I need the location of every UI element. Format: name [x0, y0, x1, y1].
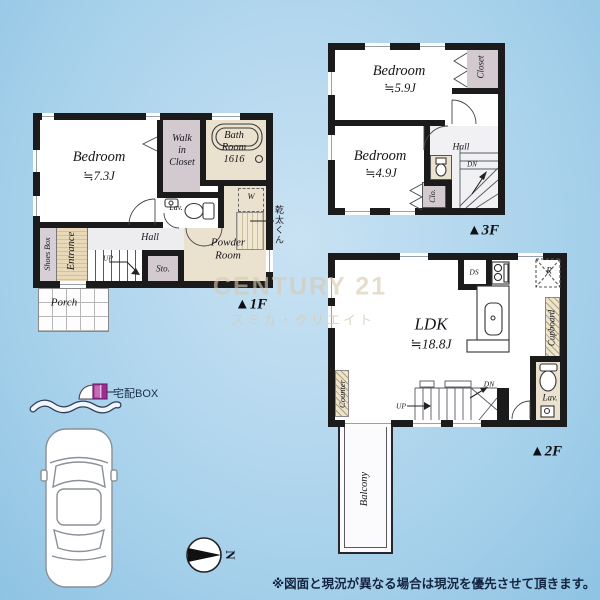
- label-wic-1: Walk: [172, 134, 192, 144]
- label-clo-3f: Clo.: [429, 189, 437, 203]
- door-opening: [266, 250, 273, 272]
- label-bedroom-1f-size: ≒7.3J: [83, 170, 115, 183]
- label-storage: Sto.: [156, 265, 170, 274]
- window: [33, 196, 40, 216]
- label-closet-3f: Closet: [477, 55, 486, 78]
- window: [146, 113, 160, 120]
- label-up-1f: UP: [103, 254, 113, 262]
- delivery-box-label: 宅配BOX: [113, 385, 158, 401]
- watermark-brand: CENTURY 21: [213, 273, 387, 302]
- label-bedroom2-3f: Bedroom: [354, 149, 407, 164]
- balcony-door: [345, 420, 391, 427]
- floorplan-canvas: Bedroom ≒7.3J Walk in Closet Bath Room 1…: [0, 0, 600, 600]
- wall: [458, 284, 492, 290]
- marker-2f: ▲2F: [530, 445, 562, 460]
- window: [453, 420, 481, 427]
- label-cupboard: Cupboard: [548, 310, 557, 346]
- car-illustration: [41, 429, 117, 587]
- label-powder-2: Room: [215, 251, 241, 262]
- window: [390, 208, 415, 215]
- label-dn-2f: DN: [484, 380, 494, 388]
- label-ds: DS: [469, 268, 478, 276]
- entrance-door: [60, 281, 86, 288]
- window: [518, 253, 543, 260]
- wall: [163, 192, 224, 198]
- room-toilet-3f: [430, 155, 452, 180]
- window: [400, 253, 428, 260]
- label-bath-1: Bath: [224, 131, 244, 142]
- label-up-2f: UP: [396, 402, 406, 410]
- delivery-box-icon: [79, 384, 116, 399]
- wave-line: [33, 403, 118, 410]
- label-dn-3f: DN: [467, 162, 477, 169]
- label-counter: Counter: [338, 380, 347, 408]
- label-bath-2: Room: [222, 143, 247, 154]
- wall: [157, 120, 163, 198]
- wall: [200, 180, 266, 186]
- label-lav-2f: Lav.: [542, 394, 557, 403]
- window: [345, 208, 370, 215]
- wall: [40, 222, 163, 228]
- label-fridge: R: [546, 267, 552, 276]
- label-hall-3f: Hall: [453, 143, 470, 153]
- label-gas-dryer: 乾太くん: [274, 205, 283, 245]
- window: [420, 43, 445, 50]
- label-ldk-size: ≒18.8J: [411, 337, 452, 351]
- disclaimer-text: ※図面と現況が異なる場合は現況を優先させて頂きます。: [272, 573, 595, 592]
- label-bath-3: 1616: [224, 155, 245, 166]
- label-hall-1f: Hall: [141, 233, 159, 243]
- window: [42, 113, 54, 120]
- label-wic-2: in: [178, 146, 186, 156]
- room-lav-2f: [536, 362, 560, 420]
- label-powder-1: Powder: [211, 238, 245, 249]
- wall: [200, 120, 206, 186]
- label-shoes-box: Shoes Box: [44, 237, 52, 270]
- porch-area: [38, 288, 109, 332]
- label-bedroom1-3f: Bedroom: [373, 64, 426, 79]
- compass-north-label: N: [222, 550, 238, 559]
- wall: [178, 250, 184, 281]
- wall: [497, 388, 509, 420]
- label-ldk: LDK: [414, 316, 447, 333]
- label-bedroom-1f: Bedroom: [73, 150, 126, 165]
- room-walk-in-closet: [163, 120, 200, 192]
- window: [365, 43, 390, 50]
- label-lav-1f: Lav.: [169, 204, 182, 212]
- window: [328, 135, 335, 160]
- label-wic-3: Closet: [169, 158, 195, 168]
- wall: [452, 88, 498, 94]
- label-bedroom1-3f-size: ≒5.9J: [384, 82, 416, 95]
- wall: [446, 182, 452, 208]
- marker-3f: ▲3F: [467, 224, 499, 239]
- window: [212, 113, 240, 120]
- label-porch: Porch: [51, 298, 77, 309]
- wall: [142, 250, 148, 281]
- watermark-company: スミカ・クリエイト: [231, 310, 375, 329]
- label-bedroom2-3f-size: ≒4.9J: [365, 167, 397, 180]
- wall: [424, 126, 430, 182]
- label-entrance: Entrance: [67, 232, 78, 271]
- window: [413, 420, 441, 427]
- label-balcony: Balcony: [360, 472, 371, 506]
- window: [328, 72, 335, 95]
- compass-icon: [187, 538, 221, 572]
- window: [33, 150, 40, 172]
- label-washer: W: [247, 192, 254, 201]
- stairs-up-1f: [88, 250, 142, 281]
